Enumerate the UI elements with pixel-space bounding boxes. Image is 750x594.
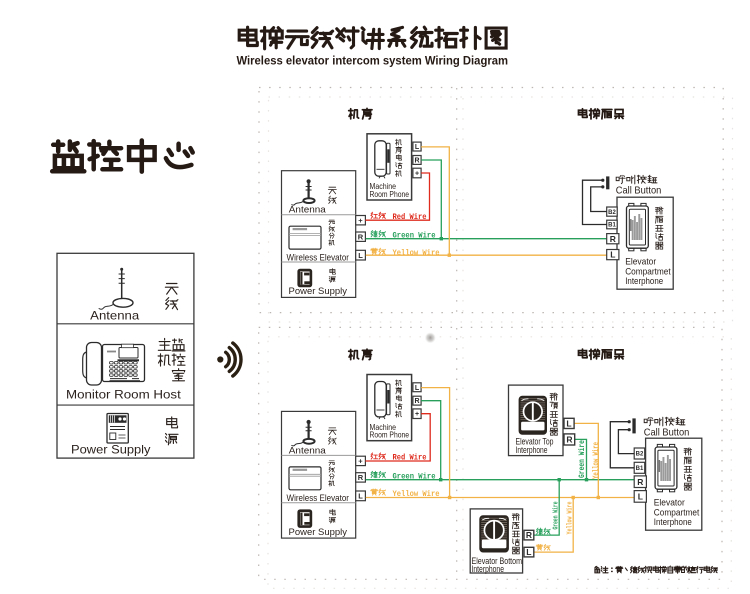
svg-text:R: R <box>566 435 572 445</box>
svg-text:Power Supply: Power Supply <box>71 443 151 457</box>
svg-text:Antenna: Antenna <box>90 310 140 323</box>
svg-text:Monitor Room Host: Monitor Room Host <box>66 388 181 402</box>
svg-text:+: + <box>415 411 419 418</box>
svg-text:Wireless Elevator: Wireless Elevator <box>287 252 350 262</box>
svg-text:R: R <box>414 158 419 165</box>
svg-text:Wireless elevator intercom sys: Wireless elevator intercom system Wiring… <box>237 54 509 68</box>
svg-text:Call Button: Call Button <box>644 427 690 438</box>
svg-text:Room Phone: Room Phone <box>370 189 410 199</box>
svg-text:Yellow Wire: Yellow Wire <box>393 248 440 258</box>
svg-text:L: L <box>415 385 420 392</box>
svg-text:L: L <box>358 251 363 260</box>
svg-text:R: R <box>526 530 532 540</box>
svg-text:B2: B2 <box>608 210 616 216</box>
svg-text:R: R <box>610 234 616 244</box>
svg-text:R: R <box>358 473 364 482</box>
svg-text:Yellow Wire: Yellow Wire <box>566 502 574 535</box>
svg-text:Power Supply: Power Supply <box>289 286 348 296</box>
svg-text:Antenna: Antenna <box>289 205 326 215</box>
svg-text:R: R <box>358 232 364 241</box>
svg-text:Interphone: Interphone <box>516 444 548 455</box>
svg-text:Interphone: Interphone <box>472 563 505 574</box>
svg-text:R: R <box>637 477 643 487</box>
svg-text:Green Wire: Green Wire <box>579 440 587 478</box>
svg-text:Call Button: Call Button <box>616 185 662 196</box>
svg-text:Interphone: Interphone <box>625 276 663 287</box>
svg-text:Green Wire: Green Wire <box>552 502 560 530</box>
svg-text:L: L <box>358 492 363 501</box>
svg-text:Antenna: Antenna <box>289 445 326 455</box>
svg-text:Wireless Elevator: Wireless Elevator <box>287 493 350 503</box>
svg-text:+: + <box>358 216 363 225</box>
svg-text:Interphone: Interphone <box>654 517 692 528</box>
svg-text:L: L <box>610 250 615 260</box>
svg-text:L: L <box>415 144 420 151</box>
svg-text:Power Supply: Power Supply <box>289 527 348 537</box>
svg-text:Room Phone: Room Phone <box>370 430 410 440</box>
svg-text:L: L <box>566 419 571 429</box>
svg-text:B2: B2 <box>636 452 644 458</box>
svg-text:R: R <box>414 398 419 405</box>
svg-text:B1: B1 <box>608 223 616 229</box>
svg-text:L: L <box>638 492 643 502</box>
svg-text:Yellow Wire: Yellow Wire <box>593 442 601 479</box>
svg-text:B1: B1 <box>636 466 644 472</box>
svg-text:+: + <box>415 171 419 178</box>
svg-text:+: + <box>358 457 363 466</box>
svg-text:L: L <box>526 547 531 557</box>
